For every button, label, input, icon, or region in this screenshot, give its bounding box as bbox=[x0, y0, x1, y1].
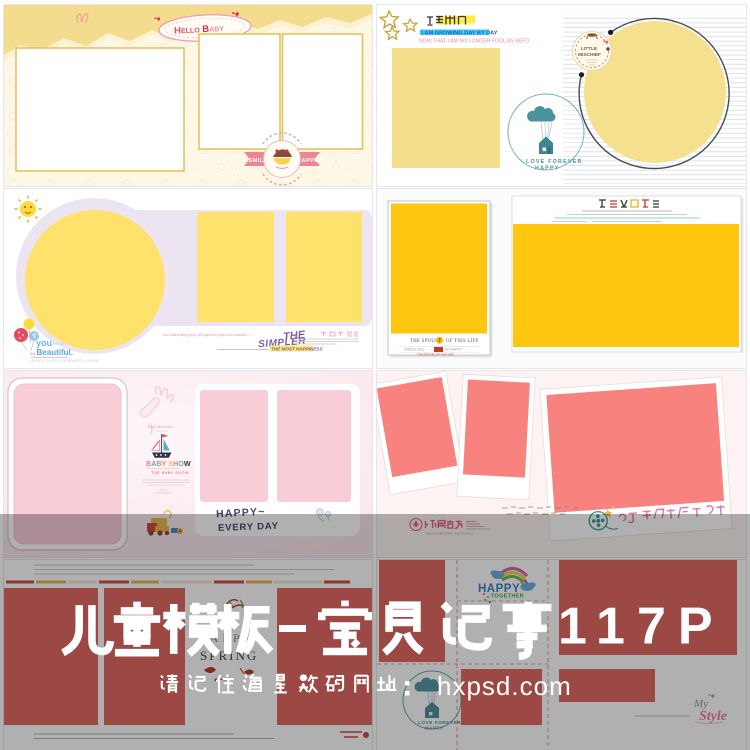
svg-text:BABY SHOW: BABY SHOW bbox=[146, 459, 191, 468]
svg-text:THE SPOUSE OF THIS LIFE: THE SPOUSE OF THIS LIFE bbox=[417, 353, 454, 357]
svg-text:BEAUTIFUL GIRL AND BEAUTIFUL D: BEAUTIFUL GIRL AND BEAUTIFUL DREAM bbox=[31, 359, 99, 363]
svg-text:so Beautiful.: so Beautiful. bbox=[30, 348, 73, 357]
svg-text:117P: 117P bbox=[558, 598, 725, 656]
svg-text:APPLE: APPLE bbox=[302, 158, 323, 164]
svg-text:THE MOST HAPPINESS: THE MOST HAPPINESS bbox=[271, 347, 323, 352]
svg-text:Your kids'smiling grow up!Days: Your kids'smiling grow up!Days ever,day … bbox=[162, 333, 253, 337]
svg-text:Baby Memories: Baby Memories bbox=[148, 425, 173, 429]
svg-text:you: you bbox=[36, 338, 52, 348]
svg-text:LITTLE: LITTLE bbox=[581, 46, 598, 52]
svg-text:THE BABY SHOW: THE BABY SHOW bbox=[151, 471, 189, 475]
svg-text:NOW THAT I AM NO LONGER FOOL A: NOW THAT I AM NO LONGER FOOL AS BEFO bbox=[419, 39, 530, 45]
svg-text:HAPPY: HAPPY bbox=[535, 166, 560, 172]
svg-text:hxpsd.com: hxpsd.com bbox=[437, 671, 572, 701]
svg-text:are so: are so bbox=[52, 341, 65, 346]
svg-text:OF THIS LIFE: OF THIS LIFE bbox=[446, 339, 479, 344]
svg-text:SO HAPPY: SO HAPPY bbox=[445, 348, 463, 352]
svg-text:GRACE 2013: GRACE 2013 bbox=[404, 348, 425, 352]
svg-text:LOVE FOREVER: LOVE FOREVER bbox=[526, 159, 583, 165]
svg-text:I AM GROWING DAY BY DAY: I AM GROWING DAY BY DAY bbox=[422, 31, 498, 37]
svg-text:MISCHIEF: MISCHIEF bbox=[578, 52, 601, 58]
